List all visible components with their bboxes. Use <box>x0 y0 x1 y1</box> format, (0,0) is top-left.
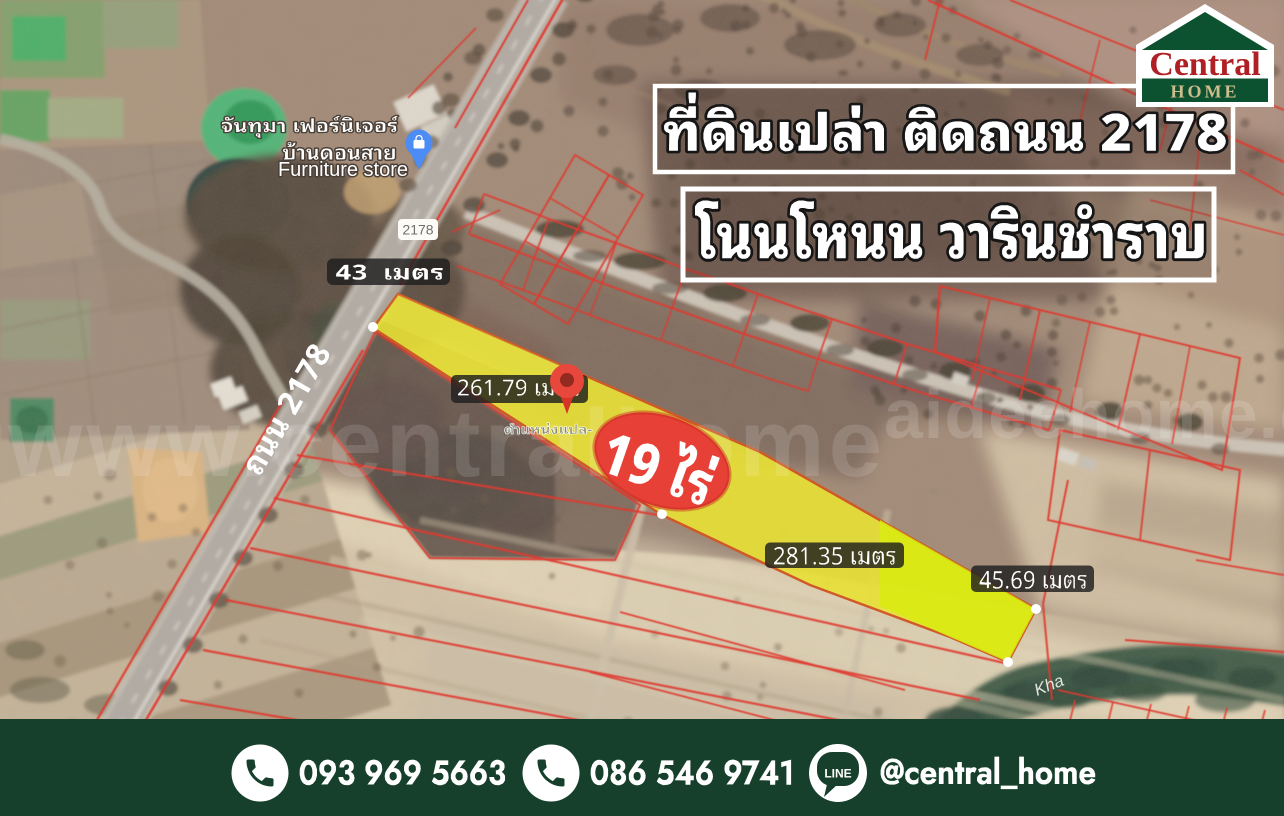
svg-text:LINE: LINE <box>824 767 851 781</box>
svg-text:2178: 2178 <box>402 222 433 238</box>
svg-text:HOME: HOME <box>1171 82 1240 102</box>
svg-text:Furniture store: Furniture store <box>278 159 408 181</box>
svg-text:www.centralhome: www.centralhome <box>7 390 886 497</box>
svg-text:aideehome.com: aideehome.com <box>884 375 1284 453</box>
svg-text:Central: Central <box>1149 46 1260 83</box>
